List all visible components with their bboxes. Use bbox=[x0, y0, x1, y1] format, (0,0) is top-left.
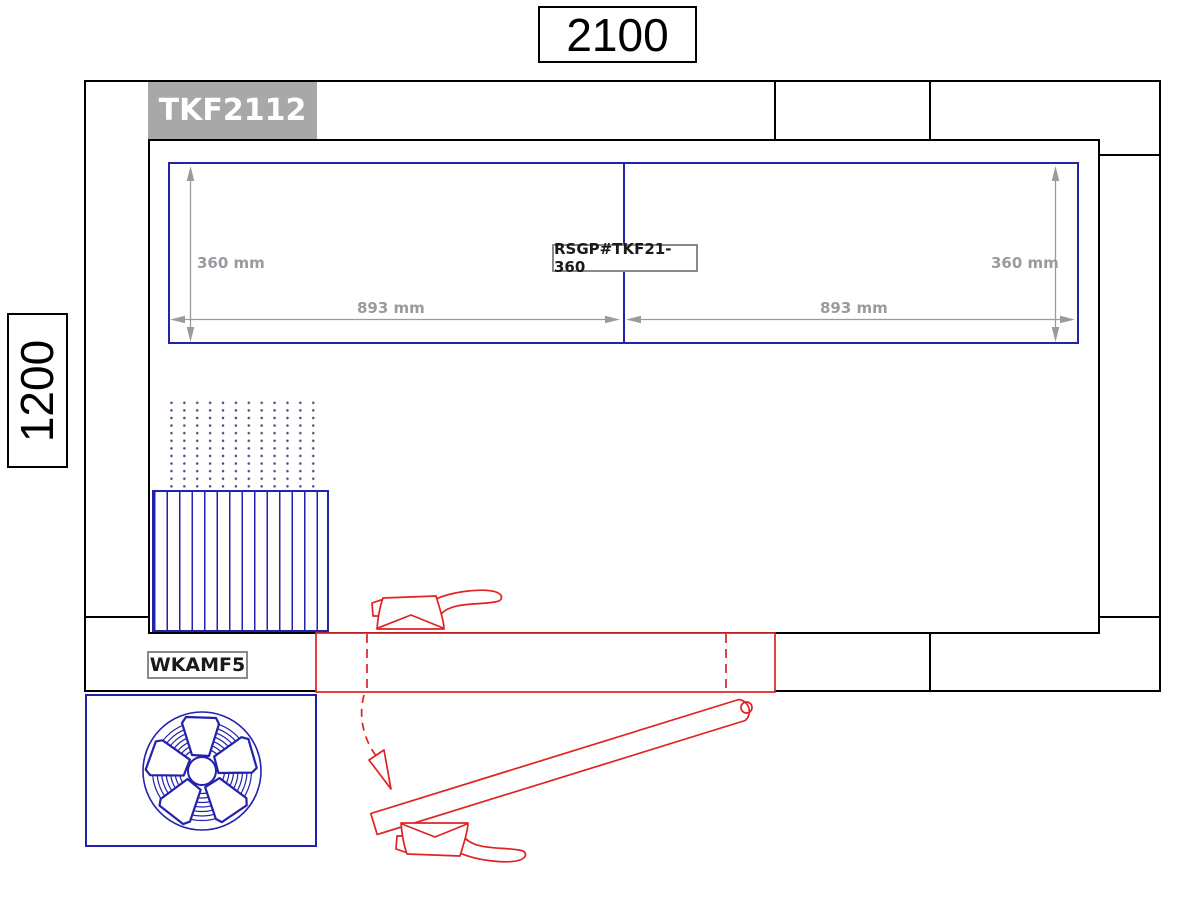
damper-motion-arrowhead bbox=[369, 750, 391, 789]
top-band-divider-1 bbox=[774, 80, 776, 141]
width-dim-label-left: 893 mm bbox=[357, 299, 425, 317]
fan-section-box bbox=[85, 694, 317, 847]
model-label: TKF2112 bbox=[159, 93, 307, 128]
heat-exchanger-coil bbox=[152, 490, 329, 632]
overall-width-value: 2100 bbox=[566, 8, 668, 62]
height-dim-label-right: 360 mm bbox=[991, 254, 1059, 272]
panel-code-label: RSGP#TKF21-360 bbox=[554, 240, 696, 276]
overall-height-value: 1200 bbox=[11, 339, 65, 441]
top-band-divider-2 bbox=[929, 80, 931, 141]
right-band-divider-bottom bbox=[1099, 616, 1161, 618]
damper-open-flap bbox=[371, 700, 752, 835]
airflow-dot-field bbox=[163, 397, 319, 489]
bottom-band-divider bbox=[929, 633, 931, 692]
height-dim-label-left: 360 mm bbox=[197, 254, 265, 272]
panel-code-box: RSGP#TKF21-360 bbox=[552, 244, 698, 272]
width-dim-label-right: 893 mm bbox=[820, 299, 888, 317]
unit-drawing-canvas: 2100 1200 TKF2112 bbox=[0, 0, 1189, 899]
damper-motion-arrow bbox=[362, 695, 383, 764]
overall-width-dimension-box: 2100 bbox=[538, 6, 697, 63]
damper-actuator-bottom bbox=[396, 823, 526, 862]
model-plate: TKF2112 bbox=[148, 82, 317, 139]
right-band-divider-top bbox=[1099, 154, 1161, 156]
left-band-divider bbox=[84, 616, 149, 618]
overall-height-dimension-box: 1200 bbox=[7, 313, 68, 468]
fan-code-label: WKAMF5 bbox=[150, 654, 246, 676]
fan-code-box: WKAMF5 bbox=[147, 651, 248, 679]
